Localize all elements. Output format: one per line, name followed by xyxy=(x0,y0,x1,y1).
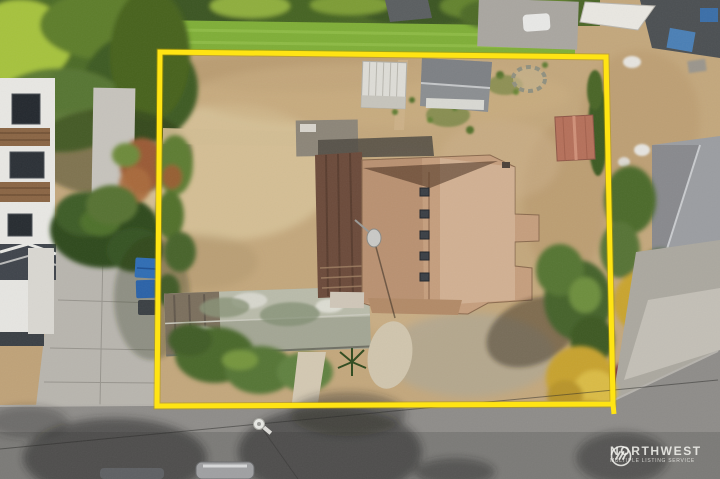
photo-scene xyxy=(0,0,720,479)
aerial-photo: NORTHWEST MULTIPLE LISTING SERVICE xyxy=(0,0,720,479)
mls-watermark: NORTHWEST MULTIPLE LISTING SERVICE xyxy=(610,445,702,464)
watermark-tagline: MULTIPLE LISTING SERVICE xyxy=(610,459,702,464)
